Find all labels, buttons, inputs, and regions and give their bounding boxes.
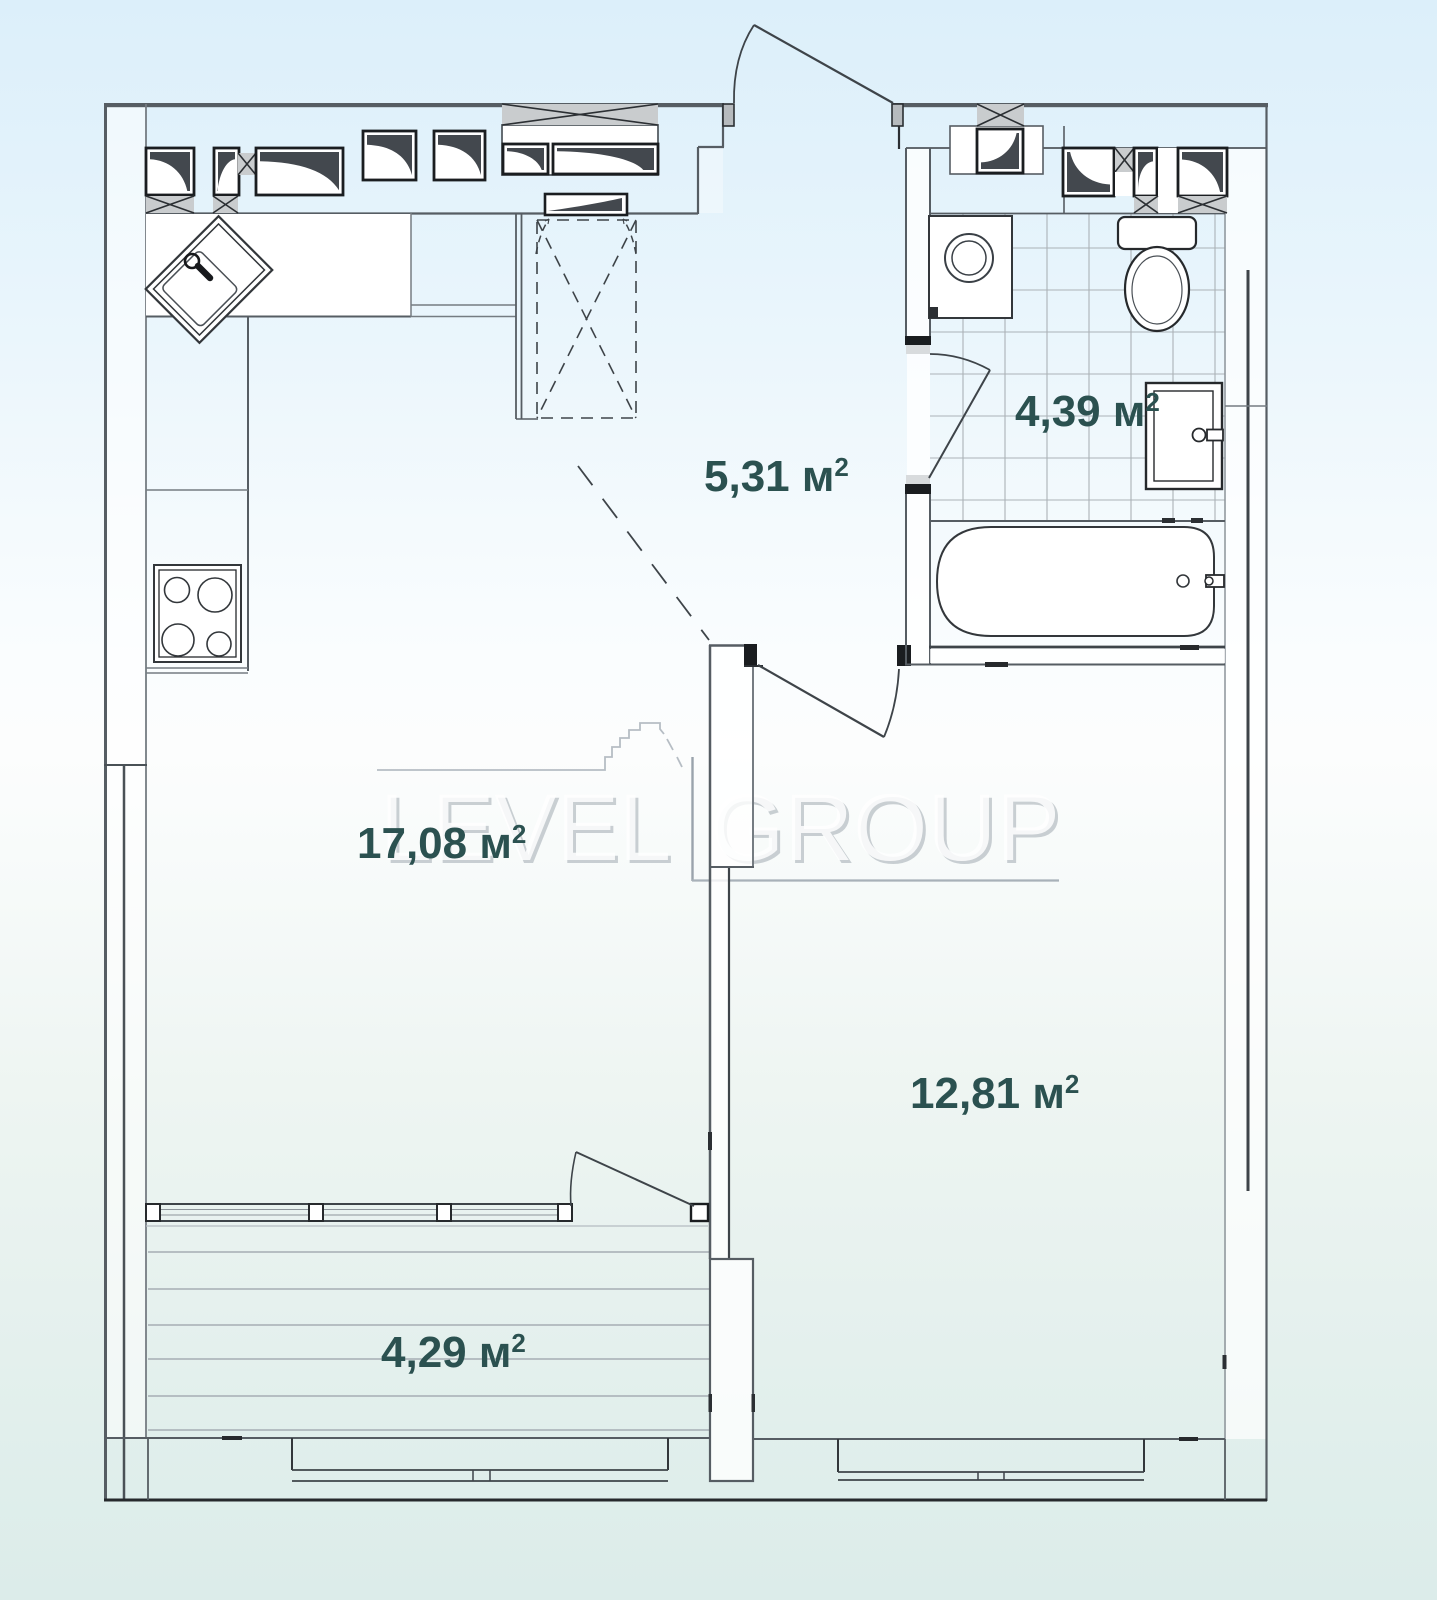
svg-text:5,31 м2: 5,31 м2 (704, 452, 849, 501)
svg-text:17,08 м2: 17,08 м2 (357, 819, 526, 868)
svg-text:4,39 м2: 4,39 м2 (1015, 387, 1160, 436)
svg-text:4,29 м2: 4,29 м2 (381, 1328, 526, 1377)
svg-text:GROUP: GROUP (710, 775, 1060, 881)
svg-text:12,81 м2: 12,81 м2 (910, 1069, 1079, 1118)
